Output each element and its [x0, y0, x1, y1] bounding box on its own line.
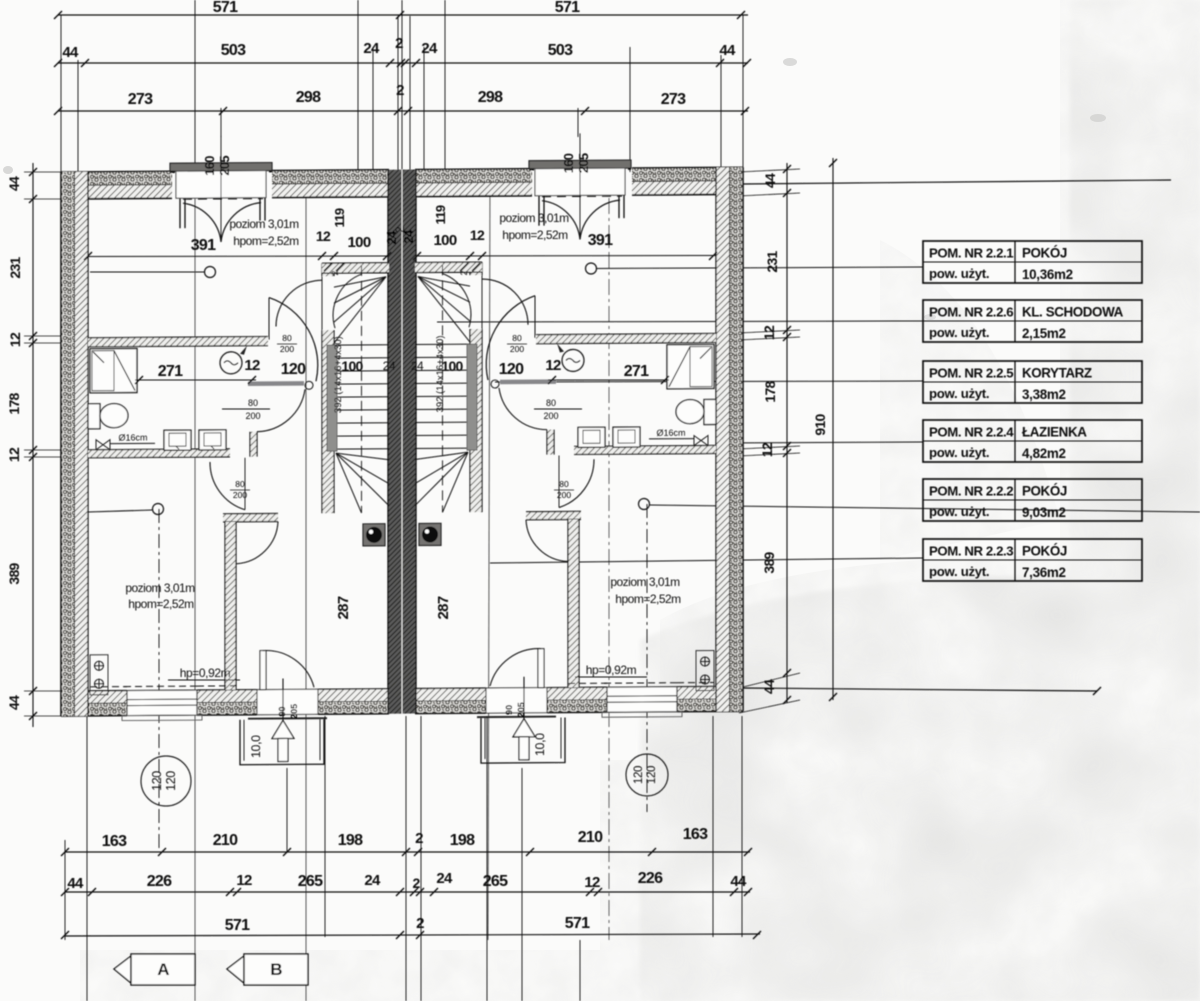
svg-text:44: 44: [62, 44, 79, 61]
svg-text:298: 298: [478, 89, 503, 106]
svg-text:210: 210: [578, 829, 603, 846]
svg-text:hpom=2,52m: hpom=2,52m: [233, 234, 299, 248]
svg-text:24: 24: [401, 229, 416, 244]
svg-text:12: 12: [761, 325, 777, 340]
svg-text:163: 163: [683, 826, 708, 843]
svg-text:200: 200: [233, 490, 247, 500]
svg-text:571: 571: [565, 915, 590, 932]
svg-text:389: 389: [761, 551, 777, 573]
svg-text:44: 44: [719, 42, 736, 59]
svg-text:503: 503: [548, 42, 573, 59]
svg-text:24: 24: [411, 359, 424, 373]
svg-text:571: 571: [225, 917, 250, 934]
svg-text:2: 2: [412, 875, 420, 891]
svg-text:2: 2: [415, 830, 423, 847]
svg-text:12: 12: [545, 357, 561, 374]
svg-text:120: 120: [499, 361, 524, 378]
svg-text:44: 44: [730, 873, 747, 890]
svg-text:231: 231: [7, 256, 23, 278]
svg-text:POM. NR 2.2.5: POM. NR 2.2.5: [929, 366, 1013, 381]
svg-text:pow. użyt.: pow. użyt.: [929, 445, 989, 460]
svg-text:120: 120: [633, 766, 645, 784]
svg-text:pow. użyt.: pow. użyt.: [929, 325, 989, 340]
svg-text:80: 80: [512, 333, 522, 343]
svg-text:265: 265: [483, 873, 508, 890]
svg-text:265: 265: [298, 873, 323, 890]
svg-text:2: 2: [396, 82, 404, 99]
svg-text:178: 178: [762, 380, 778, 402]
svg-text:200: 200: [280, 344, 294, 354]
svg-text:90: 90: [504, 705, 514, 715]
svg-text:163: 163: [102, 833, 127, 850]
svg-text:80: 80: [248, 398, 258, 408]
svg-text:hpom=2,52m: hpom=2,52m: [615, 592, 681, 606]
svg-text:10,0: 10,0: [249, 735, 263, 758]
svg-text:POKÓJ: POKÓJ: [1022, 544, 1067, 559]
svg-text:2,15m2: 2,15m2: [1022, 326, 1066, 341]
svg-text:910: 910: [812, 413, 828, 435]
svg-text:POM. NR 2.2.1: POM. NR 2.2.1: [929, 246, 1013, 261]
svg-text:pow. użyt.: pow. użyt.: [929, 386, 989, 401]
svg-text:2: 2: [330, 270, 340, 275]
svg-text:119: 119: [433, 205, 448, 224]
svg-text:24: 24: [383, 359, 396, 373]
svg-text:80: 80: [546, 398, 556, 408]
svg-text:226: 226: [147, 873, 172, 890]
svg-text:POM. NR 2.2.6: POM. NR 2.2.6: [929, 305, 1013, 320]
svg-text:210: 210: [213, 832, 238, 849]
svg-text:271: 271: [158, 363, 183, 380]
svg-text:poziom 3,01m: poziom 3,01m: [499, 211, 569, 225]
svg-text:Ø16cm: Ø16cm: [656, 428, 685, 438]
svg-text:389: 389: [6, 562, 22, 584]
svg-text:hpom=2,52m: hpom=2,52m: [128, 597, 194, 611]
svg-text:119: 119: [332, 208, 347, 227]
svg-text:12: 12: [236, 872, 252, 889]
svg-text:100: 100: [341, 358, 363, 374]
svg-text:120: 120: [164, 771, 178, 791]
svg-text:198: 198: [338, 832, 363, 849]
svg-text:571: 571: [213, 0, 238, 16]
svg-text:80: 80: [282, 333, 292, 343]
svg-text:200: 200: [245, 411, 260, 421]
svg-text:571: 571: [555, 0, 580, 16]
svg-text:160: 160: [202, 156, 217, 176]
svg-text:4,82m2: 4,82m2: [1022, 446, 1066, 461]
svg-text:poziom 3,01m: poziom 3,01m: [610, 575, 680, 589]
svg-text:198: 198: [450, 832, 475, 849]
svg-text:12: 12: [759, 442, 775, 457]
svg-text:24: 24: [363, 40, 380, 57]
svg-text:44: 44: [761, 679, 777, 694]
svg-text:178: 178: [6, 392, 22, 414]
svg-text:200: 200: [557, 490, 571, 500]
svg-text:POM. NR 2.2.4: POM. NR 2.2.4: [929, 425, 1014, 440]
svg-text:392 (14x16+4x30): 392 (14x16+4x30): [333, 336, 344, 413]
svg-text:12: 12: [470, 227, 485, 243]
svg-text:503: 503: [221, 42, 246, 59]
svg-text:hp=0,92m: hp=0,92m: [180, 666, 231, 680]
svg-text:391: 391: [191, 237, 216, 254]
svg-text:A: A: [157, 960, 169, 979]
svg-text:Ø16cm: Ø16cm: [118, 432, 147, 442]
svg-text:298: 298: [296, 89, 321, 106]
svg-text:273: 273: [128, 91, 153, 108]
svg-text:12: 12: [7, 332, 23, 347]
svg-text:hp=0,92m: hp=0,92m: [586, 663, 637, 677]
svg-text:231: 231: [764, 250, 780, 272]
svg-text:KL. SCHODOWA: KL. SCHODOWA: [1022, 305, 1124, 320]
svg-text:pow. użyt.: pow. użyt.: [929, 266, 989, 281]
svg-text:KORYTARZ: KORYTARZ: [1022, 366, 1092, 381]
svg-text:391: 391: [588, 232, 613, 249]
svg-text:44: 44: [762, 173, 778, 188]
svg-text:B: B: [270, 960, 282, 979]
svg-text:287: 287: [335, 596, 352, 619]
svg-text:44: 44: [6, 176, 22, 191]
svg-text:POKÓJ: POKÓJ: [1022, 246, 1067, 261]
svg-text:9,03m2: 9,03m2: [1022, 505, 1066, 520]
svg-text:3,38m2: 3,38m2: [1022, 387, 1066, 402]
svg-text:120: 120: [646, 766, 658, 784]
svg-text:12: 12: [6, 447, 22, 462]
svg-text:160: 160: [561, 153, 576, 173]
svg-text:205: 205: [217, 156, 232, 176]
svg-text:120: 120: [281, 361, 306, 378]
svg-text:POM. NR 2.2.2: POM. NR 2.2.2: [929, 484, 1013, 499]
svg-text:pow. użyt.: pow. użyt.: [929, 564, 989, 579]
svg-text:205: 205: [289, 704, 299, 719]
svg-text:POKÓJ: POKÓJ: [1022, 484, 1067, 499]
svg-text:poziom 3,01m: poziom 3,01m: [229, 217, 299, 231]
svg-text:ŁAZIENKA: ŁAZIENKA: [1022, 425, 1087, 440]
svg-text:100: 100: [441, 358, 463, 374]
svg-text:120: 120: [150, 771, 164, 791]
svg-text:100: 100: [434, 232, 457, 249]
svg-text:200: 200: [543, 411, 558, 421]
svg-text:poziom 3,01m: poziom 3,01m: [125, 581, 195, 595]
svg-text:24: 24: [436, 870, 453, 887]
svg-text:287: 287: [435, 596, 452, 619]
svg-text:271: 271: [624, 363, 649, 380]
svg-text:12: 12: [584, 874, 600, 891]
svg-text:226: 226: [638, 870, 663, 887]
svg-text:90: 90: [277, 706, 287, 716]
svg-text:200: 200: [510, 344, 524, 354]
svg-text:80: 80: [559, 479, 569, 489]
svg-text:44: 44: [67, 875, 84, 892]
svg-text:44: 44: [6, 695, 22, 710]
svg-text:24: 24: [364, 872, 381, 889]
svg-text:pow. użyt.: pow. użyt.: [929, 504, 989, 519]
svg-text:hpom=2,52m: hpom=2,52m: [502, 228, 568, 242]
svg-text:2: 2: [416, 915, 424, 932]
svg-text:10,36m2: 10,36m2: [1022, 267, 1073, 282]
svg-text:12: 12: [244, 357, 260, 374]
svg-text:POM. NR 2.2.3: POM. NR 2.2.3: [929, 544, 1013, 559]
svg-text:205: 205: [576, 153, 591, 173]
svg-text:7,36m2: 7,36m2: [1022, 565, 1066, 580]
svg-text:80: 80: [235, 479, 245, 489]
svg-text:10,0: 10,0: [533, 733, 547, 756]
svg-text:273: 273: [661, 91, 686, 108]
svg-text:100: 100: [348, 234, 371, 251]
svg-text:12: 12: [316, 228, 331, 244]
